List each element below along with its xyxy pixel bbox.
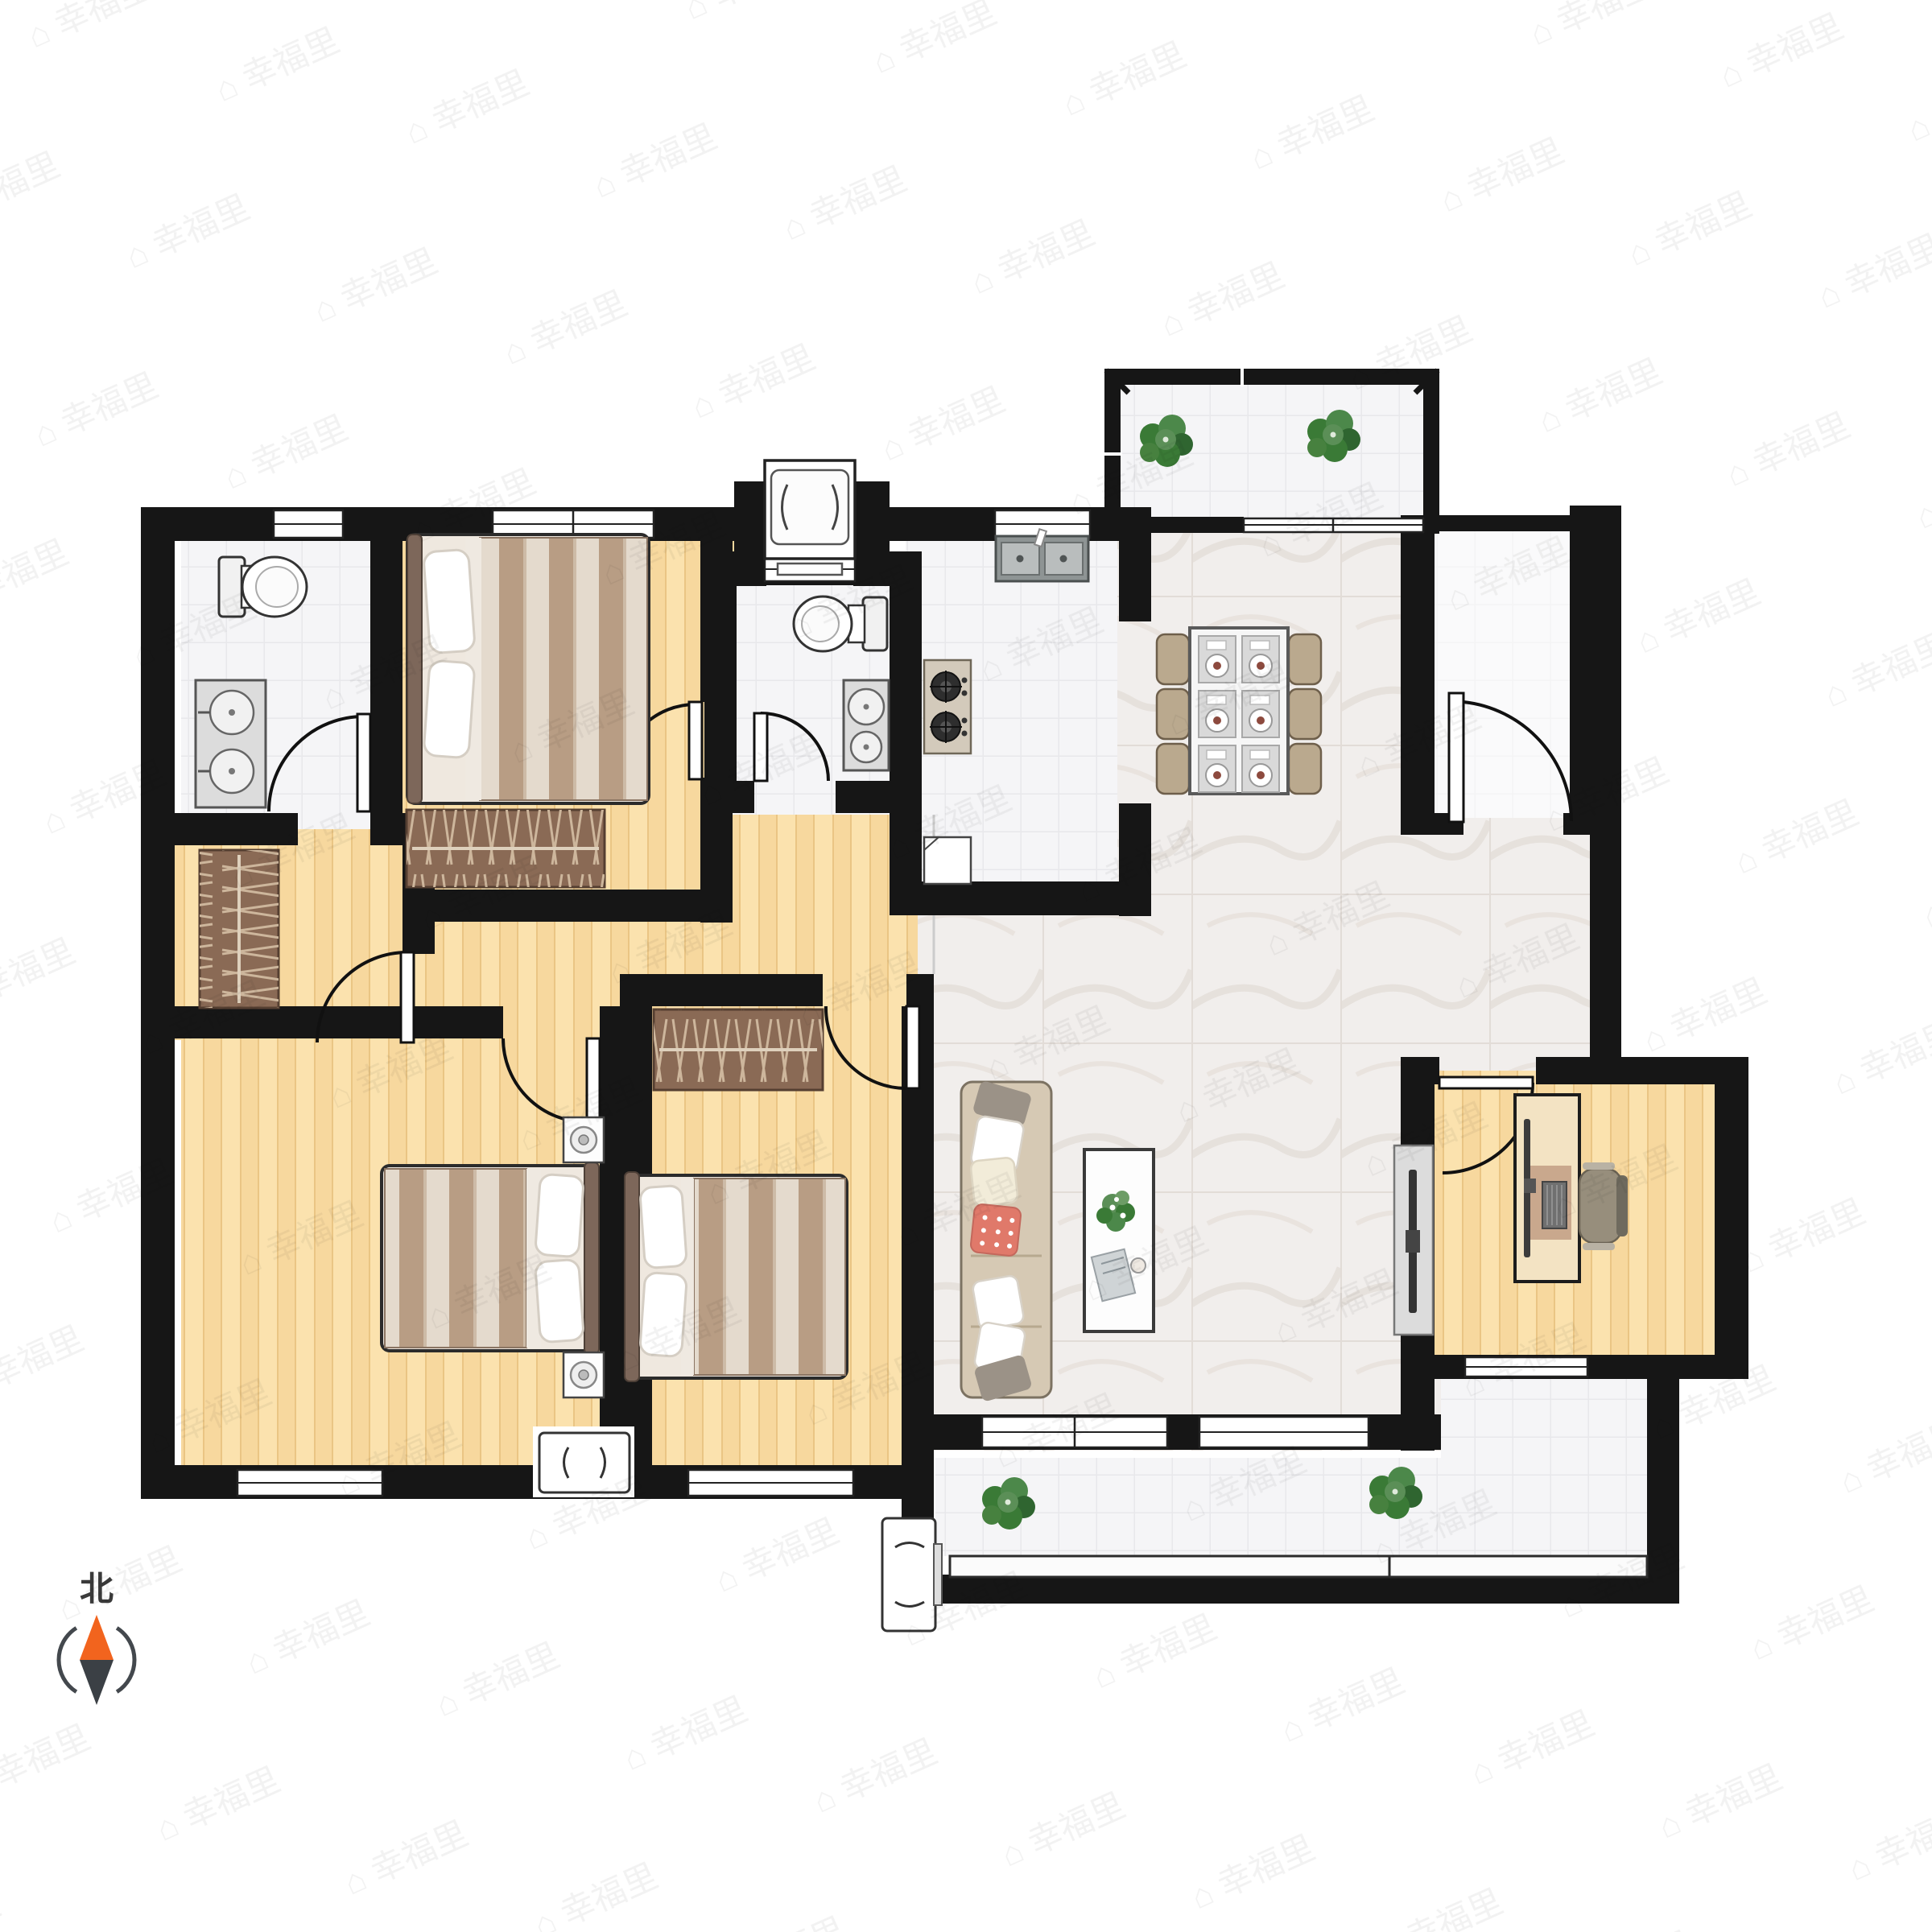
floor-plan-drawing: ⌂ 幸福里 ⌂ 幸福里 [0,0,1932,1932]
floor-plan-page: ⌂ 幸福里 ⌂ 幸福里 [0,0,1932,1932]
watermark-layer [0,0,1932,1932]
